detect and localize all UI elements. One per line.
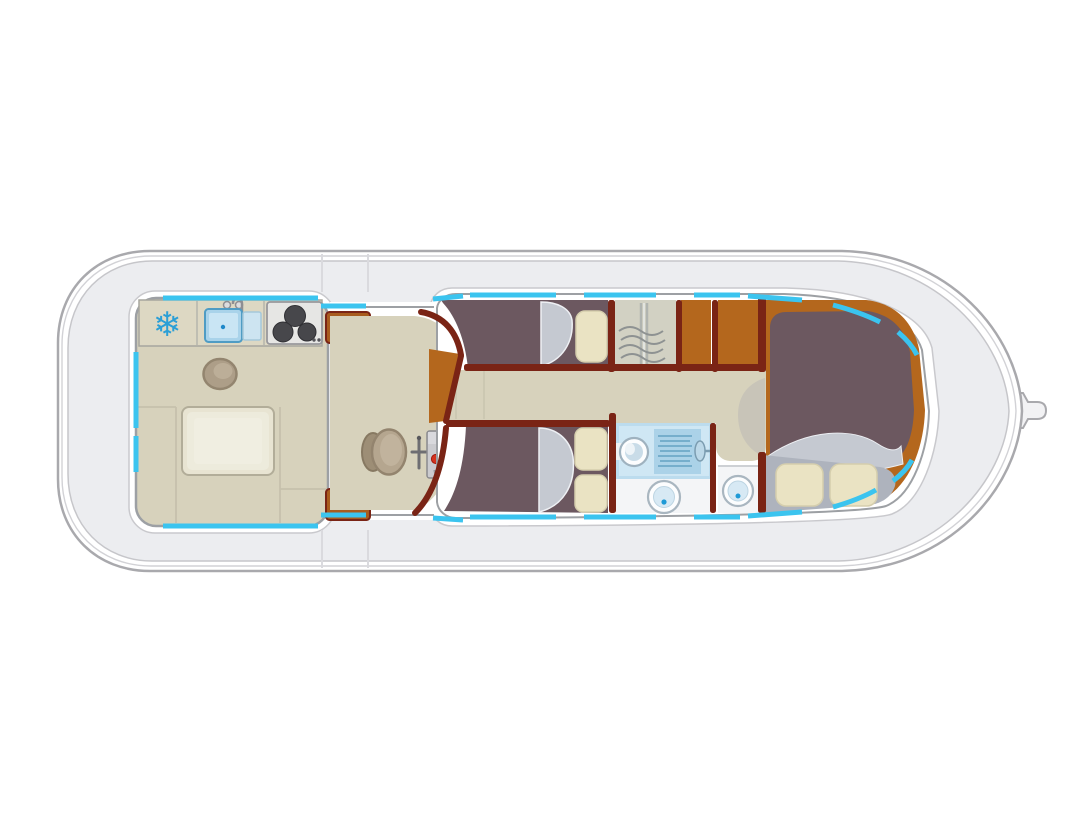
burner-icon (298, 323, 316, 341)
wall-hallway-bottom (446, 420, 610, 427)
shower-spray-icon (658, 436, 692, 466)
drainboard (243, 312, 261, 340)
table-top-highlight (194, 418, 262, 464)
washbasin-highlight (625, 443, 635, 455)
pillow (575, 428, 607, 470)
stool-highlight (214, 363, 233, 379)
pillow (576, 311, 607, 362)
sink-drain (221, 325, 225, 329)
wall-wardrobe-cabinet (676, 300, 682, 372)
toilet-drain (736, 494, 741, 499)
stove-knob (317, 338, 320, 341)
bulkhead-top (758, 296, 766, 372)
storage-cabinet (718, 300, 759, 366)
steering-wheel-hub (380, 434, 402, 466)
faucet-knob (224, 302, 231, 309)
window-strip (433, 518, 463, 520)
snowflake-icon: ❄ (153, 305, 182, 345)
wall-upper-cabin-wardrobe (608, 300, 615, 372)
throttle-knob (417, 436, 421, 440)
wall-shower-wc (710, 423, 716, 513)
shower-head (695, 441, 705, 461)
boat-floorplan-svg: ❄ (0, 0, 1092, 819)
bulkhead-bottom (758, 452, 766, 513)
burner-icon (273, 322, 293, 342)
pillow (776, 464, 823, 506)
window-strip (433, 296, 463, 299)
storage-cabinet (681, 300, 711, 366)
boat-floorplan: ❄ (0, 0, 1092, 819)
toilet-drain (661, 499, 666, 504)
pillow (575, 475, 607, 512)
wall-cabinets (712, 300, 718, 372)
wall-lower-cabin-shower (609, 413, 616, 513)
stove-knob (312, 338, 315, 341)
